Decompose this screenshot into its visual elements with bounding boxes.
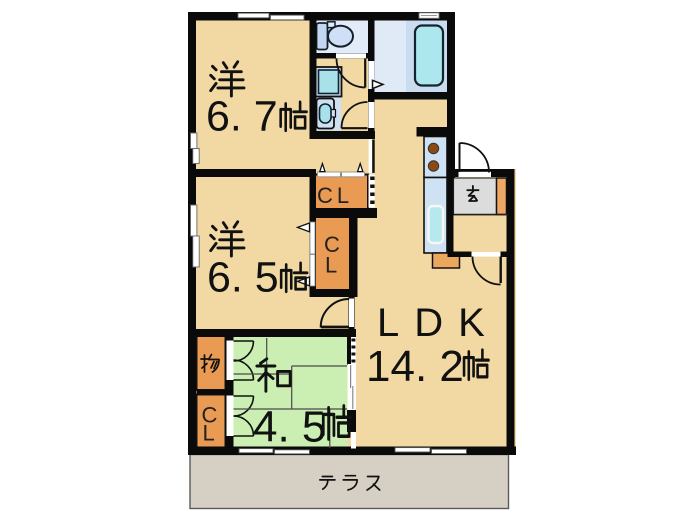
svg-text:L: L: [203, 421, 215, 446]
svg-text:4. 5: 4. 5: [253, 403, 326, 452]
svg-text:14. 2: 14. 2: [366, 342, 464, 391]
svg-text:6. 5: 6. 5: [207, 254, 279, 302]
svg-text:CL: CL: [317, 183, 353, 208]
svg-text:L: L: [325, 253, 337, 278]
svg-text:LDK: LDK: [377, 301, 500, 345]
svg-text:6. 7: 6. 7: [206, 93, 278, 141]
